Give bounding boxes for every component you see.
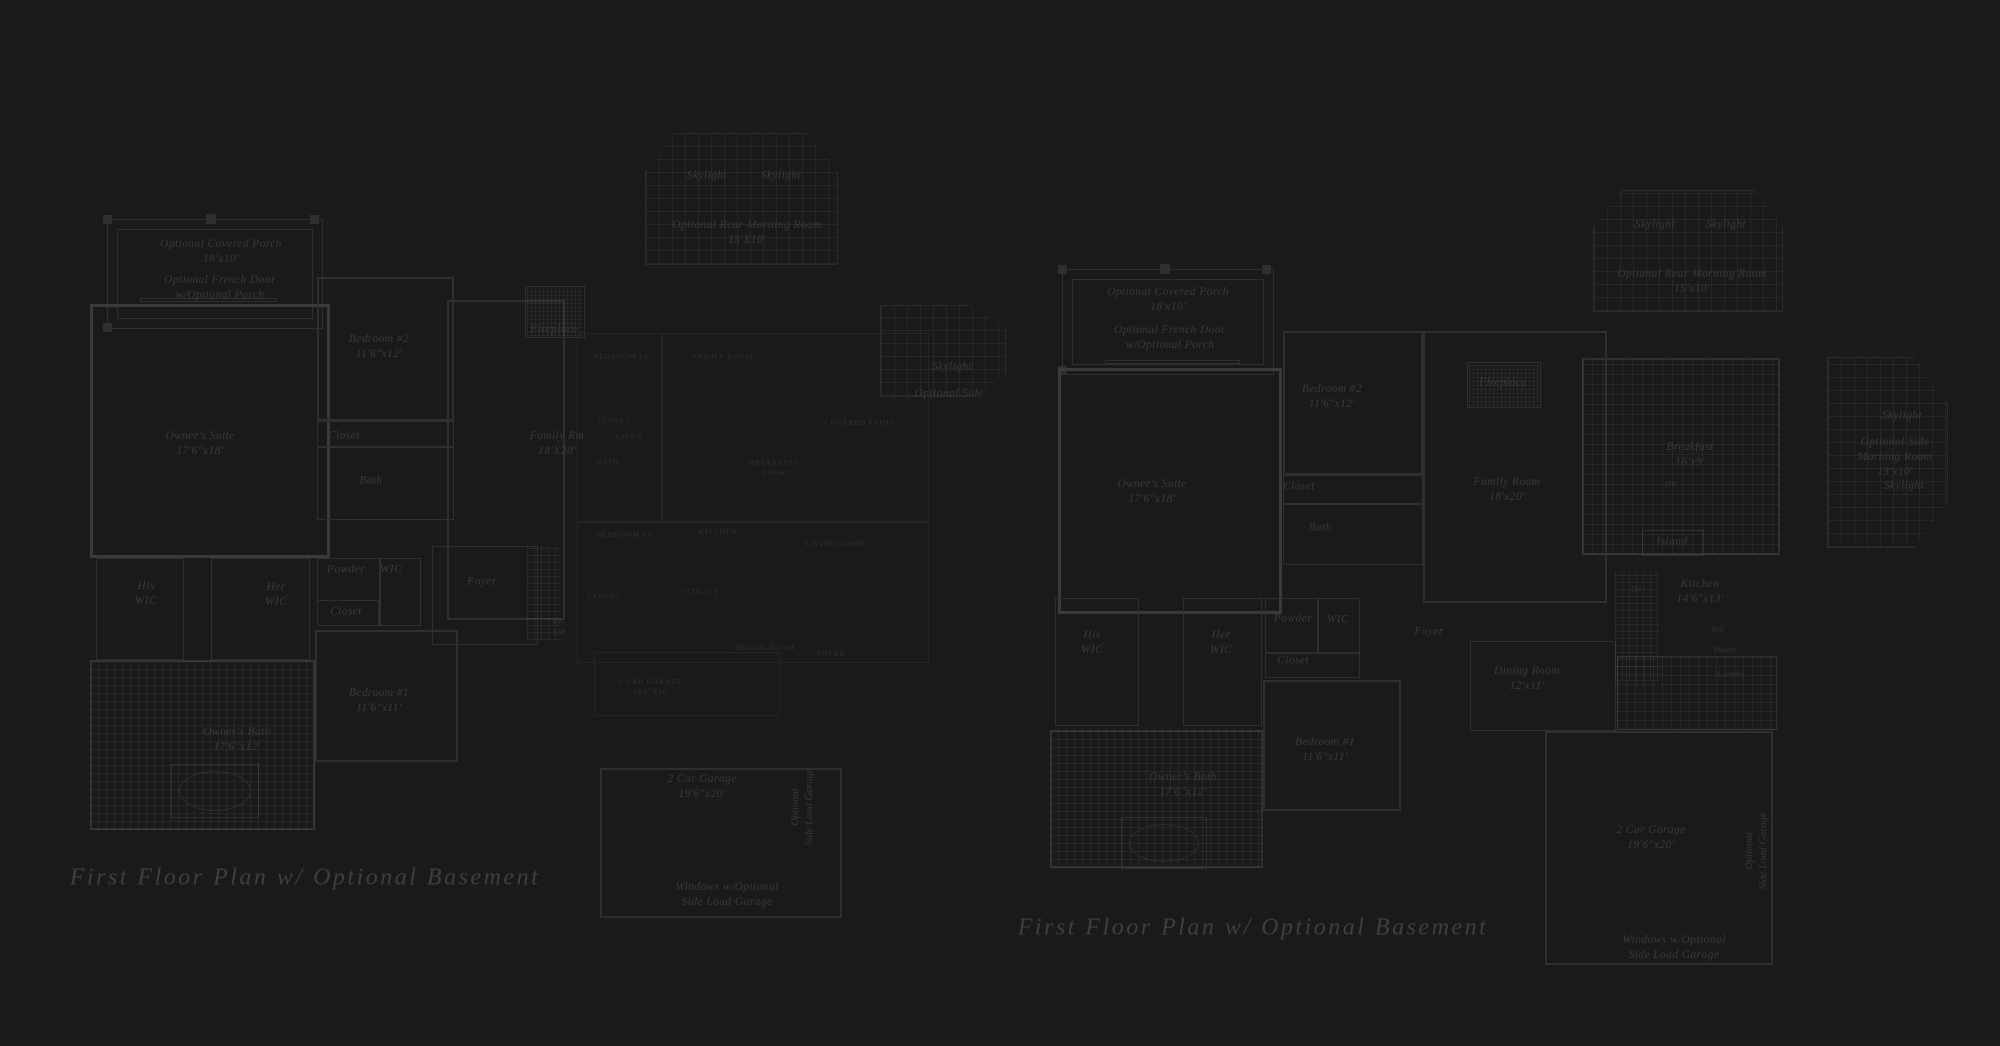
right-floor-plan-tiled-deck (1617, 656, 1777, 730)
left-floor-plan-wall (211, 558, 310, 660)
left-floor-plan-wall (379, 558, 381, 626)
left-floor-plan-tub (179, 771, 251, 811)
center-floor-plan-wall (661, 333, 663, 520)
center-floor-plan-wall (594, 652, 780, 716)
right-floor-plan-wall (1183, 598, 1262, 726)
right-floor-plan-tiled-deck (1827, 357, 1948, 548)
right-floor-plan-label-kitchen-14-6-x13: Kitchen 14'6"x13' (1676, 577, 1723, 607)
right-floor-plan-wall (1055, 598, 1139, 726)
left-floor-plan-tiled-deck (527, 546, 561, 640)
right-floor-plan-tiled-deck (1469, 364, 1539, 406)
right-floor-plan-wall (1263, 680, 1401, 811)
right-floor-plan-wall (1265, 598, 1360, 653)
right-floor-plan-wall (1283, 475, 1423, 565)
right-floor-plan-label-ref: Ref. (1712, 625, 1725, 636)
left-floor-plan-wall (90, 304, 330, 558)
right-floor-plan-tiled-deck (1593, 190, 1783, 312)
right-floor-plan-wall (1317, 598, 1319, 653)
left-floor-plan-tiled-deck (527, 288, 583, 336)
floor-plan-sheet: Optional Covered Porch 18'x10'Optional F… (0, 0, 2000, 1046)
left-plan-caption: First Floor Plan w/ Optional Basement (70, 865, 541, 892)
right-floor-plan-wall (1105, 360, 1240, 364)
right-floor-plan-wall (1470, 641, 1616, 731)
left-floor-plan-wall (317, 277, 454, 421)
left-floor-plan-wall (140, 298, 277, 302)
right-floor-plan-label-foyer: Foyer (1414, 624, 1443, 639)
center-floor-plan-wall (577, 333, 929, 663)
left-floor-plan-wall (317, 446, 454, 448)
right-floor-plan-tub (1129, 824, 1199, 862)
right-floor-plan-wall (1283, 503, 1423, 505)
right-floor-plan-wall (1072, 279, 1264, 365)
right-floor-plan-wall (1283, 331, 1423, 475)
left-floor-plan-wall (317, 600, 379, 626)
left-floor-plan-tiled-deck (645, 133, 838, 265)
center-floor-plan-wall (577, 521, 929, 523)
right-floor-plan-wall (1265, 653, 1360, 678)
right-floor-plan-wall (1058, 368, 1282, 614)
right-plan-caption: First Floor Plan w/ Optional Basement (1018, 915, 1489, 942)
right-floor-plan-tiled-deck (1582, 358, 1780, 555)
left-floor-plan-wall (600, 768, 842, 918)
left-floor-plan-wall (317, 421, 454, 520)
right-floor-plan-wall (1545, 731, 1773, 965)
left-floor-plan-wall (96, 558, 184, 660)
left-floor-plan-wall (315, 630, 458, 762)
right-floor-plan-label-pantry: Pantry (1714, 646, 1736, 657)
